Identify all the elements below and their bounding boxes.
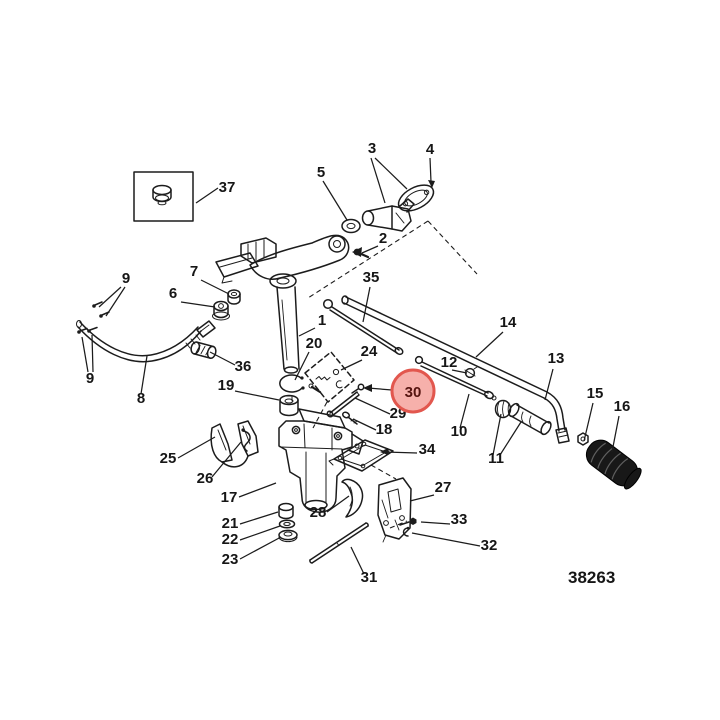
callout-36: 36 xyxy=(235,358,252,375)
drawing-number: 38263 xyxy=(568,568,615,587)
part-nut-7 xyxy=(228,290,240,304)
part-screw-18 xyxy=(342,411,357,424)
part-oring-5 xyxy=(342,220,360,233)
part-bracket-27 xyxy=(378,478,411,542)
callout-2: 2 xyxy=(379,230,387,247)
callout-15: 15 xyxy=(587,385,604,402)
part-washer-22 xyxy=(280,520,295,528)
callout-34: 34 xyxy=(419,441,436,458)
callout-17: 17 xyxy=(221,489,238,506)
part-plug-36 xyxy=(190,341,217,359)
callout-20: 20 xyxy=(306,335,323,352)
callout-23: 23 xyxy=(222,551,239,568)
callout-4: 4 xyxy=(426,141,435,158)
part-steering-shaft xyxy=(277,287,299,373)
part-grommet-6 xyxy=(213,302,230,321)
part-plate-34 xyxy=(329,440,393,471)
callout-1: 1 xyxy=(318,312,326,329)
callout-3: 3 xyxy=(368,140,376,157)
part-kit-box-24 xyxy=(305,352,354,402)
part-washer-23 xyxy=(279,530,297,541)
callout-19: 19 xyxy=(218,377,235,394)
part-bolt-33 xyxy=(400,518,417,526)
part-swivel-bracket xyxy=(216,235,349,288)
part-bushing-19 xyxy=(280,396,298,416)
part-cable-clips-9 xyxy=(77,302,109,334)
part-pin-31 xyxy=(310,523,368,563)
part-inset-box-37 xyxy=(134,172,193,221)
callout-14: 14 xyxy=(500,314,517,331)
highlighted-callout-30[interactable]: 30 xyxy=(392,370,434,412)
callout-13: 13 xyxy=(548,350,565,367)
callout-37: 37 xyxy=(219,179,236,196)
part-nut-15 xyxy=(578,433,588,445)
callout-27: 27 xyxy=(435,479,452,496)
exploded-parts-diagram: 37 5 3 4 2 35 9 7 6 1 9 8 36 20 19 24 29… xyxy=(0,0,720,720)
callout-18: 18 xyxy=(376,421,393,438)
part-clip-12 xyxy=(465,367,477,377)
part-cable-8 xyxy=(77,321,216,362)
part-steering-arm-3 xyxy=(363,180,438,231)
assembly-dash-lines xyxy=(308,221,477,528)
assembly-arrow-icon xyxy=(352,247,362,257)
callout-labels: 37 5 3 4 2 35 9 7 6 1 9 8 36 20 19 24 29… xyxy=(86,140,631,586)
callout-33: 33 xyxy=(451,511,468,528)
parts-diagram-page: 37 5 3 4 2 35 9 7 6 1 9 8 36 20 19 24 29… xyxy=(0,0,720,720)
callout-26: 26 xyxy=(197,470,214,487)
part-yoke-25 xyxy=(211,421,258,467)
callout-7: 7 xyxy=(190,263,198,280)
callout-24: 24 xyxy=(361,343,378,360)
callout-12: 12 xyxy=(441,354,458,371)
callout-6: 6 xyxy=(169,285,177,302)
part-bushing-21 xyxy=(279,504,293,519)
callout-25: 25 xyxy=(160,450,177,467)
callout-9-upper: 9 xyxy=(122,270,130,287)
part-tilt-tube-11 xyxy=(496,401,553,437)
callout-35: 35 xyxy=(363,269,380,286)
callout-22: 22 xyxy=(222,531,239,548)
callout-31: 31 xyxy=(361,569,378,586)
callout-9-lower: 9 xyxy=(86,370,94,387)
callout-16: 16 xyxy=(614,398,631,415)
callout-21: 21 xyxy=(222,515,239,532)
part-detent-pin-30 xyxy=(352,384,364,393)
callout-32: 32 xyxy=(481,537,498,554)
callout-28: 28 xyxy=(310,504,327,521)
callout-5: 5 xyxy=(317,164,325,181)
highlight-label: 30 xyxy=(405,384,422,401)
callout-8: 8 xyxy=(137,390,145,407)
part-housing-17 xyxy=(279,409,363,512)
callout-10: 10 xyxy=(451,423,468,440)
part-circlip-20 xyxy=(280,375,305,392)
callout-11: 11 xyxy=(488,450,504,467)
